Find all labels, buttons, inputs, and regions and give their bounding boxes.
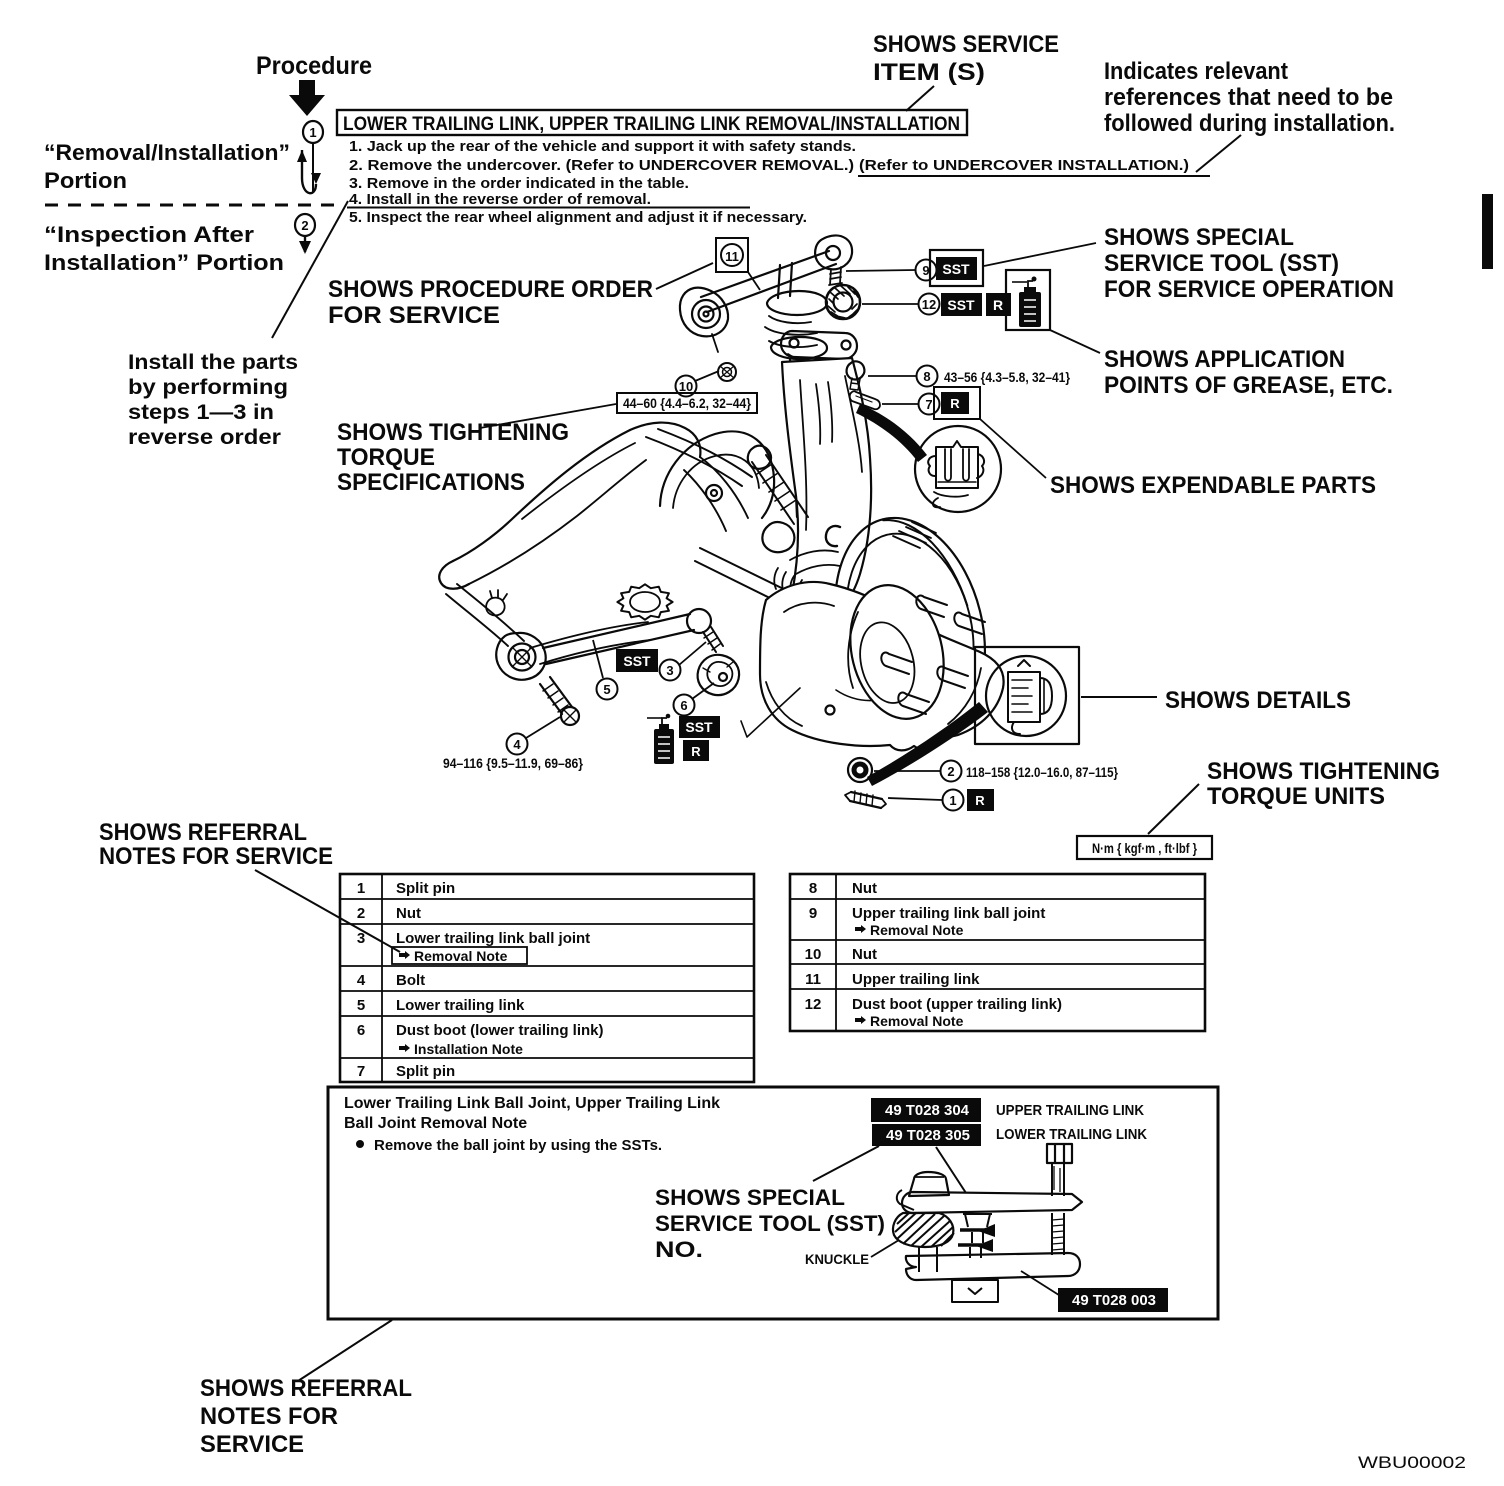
svg-text:5: 5 [603, 682, 610, 697]
svg-text:SHOWS REFERRAL: SHOWS REFERRAL [99, 819, 307, 846]
svg-text:Lower trailing link: Lower trailing link [396, 997, 525, 1014]
svg-text:POINTS OF GREASE, ETC.: POINTS OF GREASE, ETC. [1104, 372, 1393, 399]
svg-text:by performing: by performing [128, 376, 288, 399]
svg-text:Lower trailing link ball joint: Lower trailing link ball joint [396, 930, 590, 947]
svg-text:Lower Trailing Link Ball Joint: Lower Trailing Link Ball Joint, Upper Tr… [344, 1095, 720, 1112]
svg-text:9: 9 [922, 263, 929, 278]
svg-text:Portion: Portion [44, 168, 127, 193]
svg-text:3: 3 [357, 930, 365, 947]
svg-text:4. Install in the reverse orde: 4. Install in the reverse order of remov… [349, 192, 651, 208]
svg-text:SHOWS SPECIAL: SHOWS SPECIAL [1104, 224, 1294, 251]
svg-text:Dust boot (lower trailing link: Dust boot (lower trailing link) [396, 1022, 604, 1039]
svg-text:49 T028 003: 49 T028 003 [1072, 1292, 1156, 1309]
svg-text:11: 11 [805, 971, 821, 988]
svg-text:2: 2 [301, 218, 308, 233]
svg-text:reverse order: reverse order [128, 426, 281, 449]
svg-text:SHOWS SERVICE: SHOWS SERVICE [873, 31, 1059, 58]
svg-text:SST: SST [947, 297, 975, 313]
svg-text:12: 12 [922, 297, 936, 312]
svg-text:3: 3 [666, 663, 673, 678]
svg-text:Procedure: Procedure [256, 52, 372, 80]
svg-text:LOWER TRAILING LINK, UPPER TRA: LOWER TRAILING LINK, UPPER TRAILING LINK… [343, 114, 960, 135]
svg-text:SERVICE TOOL (SST): SERVICE TOOL (SST) [1104, 250, 1339, 277]
svg-text:6: 6 [680, 698, 687, 713]
svg-text:44–60 {4.4–6.2, 32–44}: 44–60 {4.4–6.2, 32–44} [623, 395, 751, 411]
svg-text:49 T028 304: 49 T028 304 [885, 1102, 970, 1119]
svg-text:Split pin: Split pin [396, 1063, 455, 1080]
svg-text:SERVICE TOOL (SST): SERVICE TOOL (SST) [655, 1211, 885, 1236]
svg-text:8: 8 [923, 369, 930, 384]
svg-text:UPPER TRAILING LINK: UPPER TRAILING LINK [996, 1103, 1144, 1119]
svg-text:11: 11 [725, 249, 739, 264]
svg-text:SHOWS TIGHTENING: SHOWS TIGHTENING [1207, 758, 1440, 785]
svg-text:Removal Note: Removal Note [870, 922, 964, 938]
svg-text:10: 10 [679, 379, 693, 394]
svg-text:6: 6 [357, 1022, 365, 1039]
svg-text:FOR SERVICE OPERATION: FOR SERVICE OPERATION [1104, 276, 1394, 303]
svg-text:followed during installation.: followed during installation. [1104, 110, 1395, 137]
svg-text:7: 7 [357, 1063, 365, 1080]
svg-text:SHOWS DETAILS: SHOWS DETAILS [1165, 687, 1351, 714]
svg-text:Split pin: Split pin [396, 880, 455, 897]
svg-text:Remove the ball joint by using: Remove the ball joint by using the SSTs. [374, 1137, 662, 1154]
svg-text:“Inspection After: “Inspection After [44, 222, 255, 247]
svg-text:Install the parts: Install the parts [128, 351, 298, 374]
svg-text:SERVICE: SERVICE [200, 1431, 304, 1458]
svg-text:references that need to be: references that need to be [1104, 84, 1393, 111]
svg-text:Ball Joint Removal Note: Ball Joint Removal Note [344, 1115, 527, 1132]
svg-text:SST: SST [623, 653, 651, 669]
svg-text:1. Jack up the rear of the veh: 1. Jack up the rear of the vehicle and s… [349, 139, 856, 155]
svg-text:NOTES FOR: NOTES FOR [200, 1403, 338, 1430]
svg-text:12: 12 [805, 996, 822, 1013]
svg-text:10: 10 [805, 946, 822, 963]
svg-text:94–116 {9.5–11.9, 69–86}: 94–116 {9.5–11.9, 69–86} [443, 755, 583, 771]
svg-text:Dust boot (upper trailing link: Dust boot (upper trailing link) [852, 996, 1062, 1013]
svg-text:SST: SST [685, 719, 713, 735]
svg-text:NO.: NO. [655, 1237, 703, 1262]
svg-text:9: 9 [809, 905, 817, 922]
svg-text:Upper trailing link ball joint: Upper trailing link ball joint [852, 905, 1045, 922]
svg-text:Removal Note: Removal Note [414, 948, 508, 964]
svg-text:43–56 {4.3–5.8, 32–41}: 43–56 {4.3–5.8, 32–41} [944, 369, 1070, 385]
svg-text:“Removal/Installation”: “Removal/Installation” [44, 140, 290, 165]
svg-text:5: 5 [357, 997, 365, 1014]
svg-text:N·m { kgf·m , ft·lbf }: N·m { kgf·m , ft·lbf } [1092, 840, 1197, 856]
svg-text:SHOWS REFERRAL: SHOWS REFERRAL [200, 1375, 412, 1402]
svg-text:R: R [993, 297, 1003, 313]
svg-text:TORQUE UNITS: TORQUE UNITS [1207, 783, 1385, 810]
svg-text:KNUCKLE: KNUCKLE [805, 1252, 869, 1267]
svg-text:1: 1 [357, 880, 365, 897]
svg-text:SPECIFICATIONS: SPECIFICATIONS [337, 469, 525, 496]
svg-text:LOWER TRAILING LINK: LOWER TRAILING LINK [996, 1127, 1147, 1143]
svg-text:Upper trailing link: Upper trailing link [852, 971, 980, 988]
svg-text:2: 2 [357, 905, 365, 922]
svg-text:SST: SST [942, 261, 970, 277]
svg-text:R: R [691, 744, 701, 759]
svg-text:steps 1—3 in: steps 1—3 in [128, 401, 274, 424]
svg-text:FOR SERVICE: FOR SERVICE [328, 302, 500, 329]
svg-text:7: 7 [925, 397, 932, 412]
svg-text:Installation” Portion: Installation” Portion [44, 250, 284, 275]
svg-text:SHOWS SPECIAL: SHOWS SPECIAL [655, 1185, 845, 1210]
svg-text:Nut: Nut [852, 880, 877, 897]
svg-text:NOTES FOR SERVICE: NOTES FOR SERVICE [99, 843, 333, 870]
svg-text:118–158 {12.0–16.0, 87–115}: 118–158 {12.0–16.0, 87–115} [966, 764, 1118, 780]
svg-text:1: 1 [309, 125, 316, 140]
svg-text:R: R [950, 396, 960, 411]
svg-text:SHOWS TIGHTENING: SHOWS TIGHTENING [337, 419, 569, 446]
svg-text:(Refer to UNDERCOVER INSTALLAT: (Refer to UNDERCOVER INSTALLATION.) [859, 158, 1189, 174]
svg-text:SHOWS PROCEDURE ORDER: SHOWS PROCEDURE ORDER [328, 276, 653, 303]
svg-text:4: 4 [357, 972, 366, 989]
svg-text:WBU00002: WBU00002 [1358, 1453, 1466, 1472]
svg-text:1: 1 [949, 793, 956, 808]
svg-text:R: R [975, 793, 985, 808]
svg-text:SHOWS APPLICATION: SHOWS APPLICATION [1104, 346, 1345, 373]
svg-text:ITEM (S): ITEM (S) [873, 59, 985, 86]
svg-text:5. Inspect the rear wheel alig: 5. Inspect the rear wheel alignment and … [349, 210, 807, 226]
svg-text:2. Remove the undercover. (Ref: 2. Remove the undercover. (Refer to UNDE… [349, 158, 854, 174]
svg-text:Installation Note: Installation Note [414, 1041, 523, 1057]
svg-text:8: 8 [809, 880, 817, 897]
svg-text:2: 2 [947, 764, 954, 779]
svg-text:Indicates relevant: Indicates relevant [1104, 58, 1288, 85]
svg-text:Nut: Nut [852, 946, 877, 963]
svg-text:Bolt: Bolt [396, 972, 425, 989]
svg-text:TORQUE: TORQUE [337, 444, 435, 471]
svg-text:49 T028 305: 49 T028 305 [886, 1127, 970, 1144]
svg-text:Removal Note: Removal Note [870, 1013, 964, 1029]
svg-text:SHOWS EXPENDABLE PARTS: SHOWS EXPENDABLE PARTS [1050, 472, 1376, 499]
svg-text:4: 4 [513, 737, 521, 752]
svg-text:3. Remove in the order indicat: 3. Remove in the order indicated in the … [349, 176, 689, 192]
svg-text:Nut: Nut [396, 905, 421, 922]
